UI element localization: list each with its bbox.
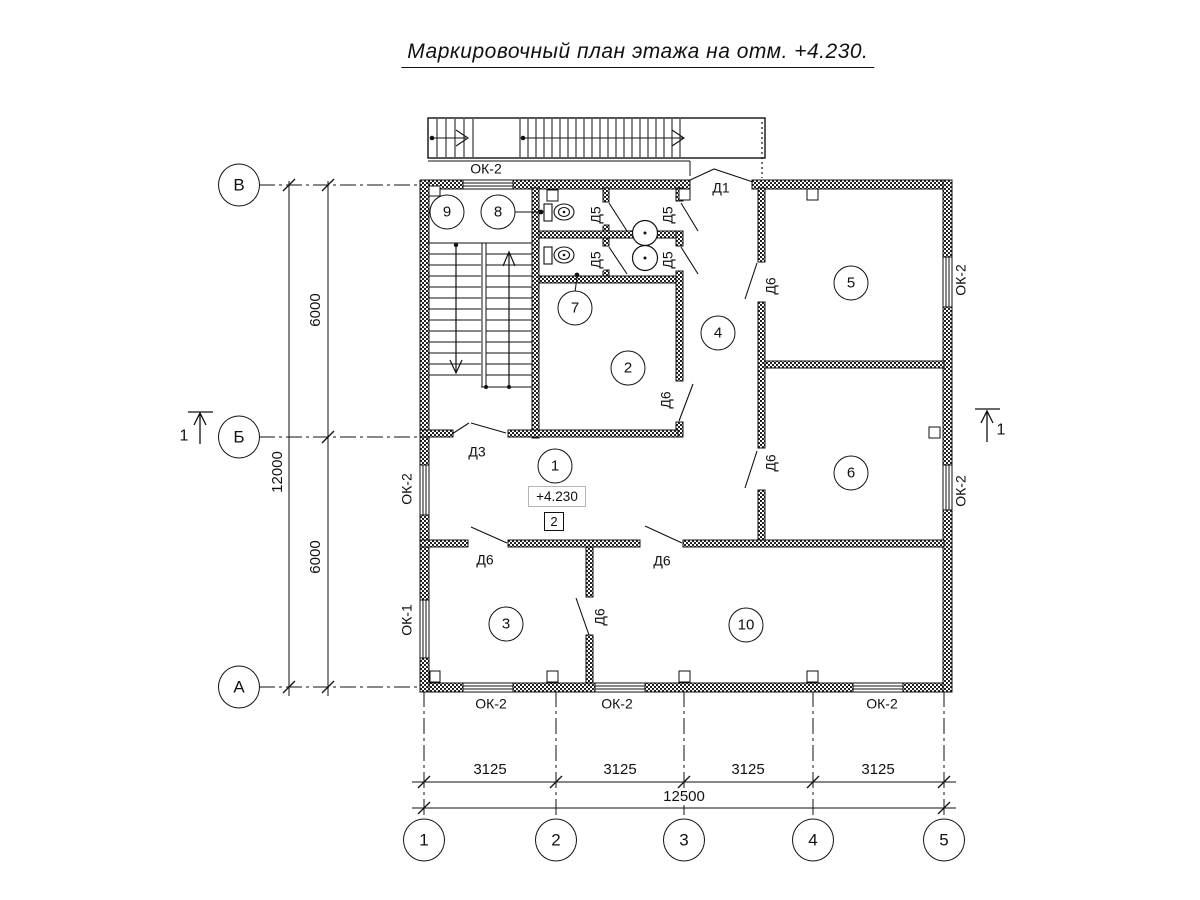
window-label: ОК-2 [400,471,415,507]
toilet-icon [544,247,574,264]
door-label: Д5 [661,204,676,225]
axis-col-circle: 4 [792,819,834,862]
dimension-label: 12000 [270,449,286,495]
elevation-mark: +4.230 [528,486,586,507]
door-label: Д5 [589,249,604,270]
floor-plan-page: Маркировочный план этажа на отм. +4.230.… [0,0,1200,900]
dimension-label: 3125 [859,762,896,778]
axis-row-circle: В [218,164,260,207]
dimension-label: 6000 [308,291,324,328]
axis-row-circle: Б [218,416,260,459]
sink-icon [633,221,658,271]
window-label: ОК-2 [864,697,900,712]
axis-row-circle: А [218,666,260,709]
window-left-1 [420,465,429,515]
door-label: Д6 [659,389,674,410]
dimension-label: 6000 [308,538,324,575]
room-number-circle: 2 [611,351,646,386]
door-label: Д1 [710,181,731,196]
door-label: Д6 [474,553,495,568]
room-number-circle: 6 [834,456,869,491]
window-right-1 [943,257,952,307]
dimension-label: 3125 [471,762,508,778]
room-number-circle: 1 [538,449,573,484]
window-label: ОК-2 [473,697,509,712]
floor-plan-drawing [0,0,1200,900]
section-mark-label: 1 [995,423,1008,440]
axis-col-circle: 2 [535,819,577,862]
window-bottom-3 [853,683,903,692]
window-label: ОК-2 [954,262,969,298]
drawing-title: Маркировочный план этажа на отм. +4.230. [401,40,874,68]
door-label: Д5 [589,204,604,225]
door-label: Д6 [764,452,779,473]
window-right-2 [943,465,952,510]
zone-number-box: 2 [544,512,564,531]
window-left-2 [420,600,429,658]
room-number-circle: 4 [701,316,736,351]
room-number-circle: 8 [481,195,516,230]
dimension-label: 3125 [601,762,638,778]
room-number-circle: 7 [558,291,593,326]
door-label: Д5 [661,249,676,270]
axis-col-circle: 5 [923,819,965,862]
door-label: Д3 [466,445,487,460]
door-label: Д6 [593,606,608,627]
room-number-circle: 9 [430,195,465,230]
room-number-circle: 10 [729,608,764,643]
section-mark-arrows [188,409,1000,444]
window-bottom-1 [463,683,513,692]
window-label: ОК-2 [468,162,504,177]
room-number-circle: 5 [834,266,869,301]
window-label: ОК-2 [599,697,635,712]
section-mark-label: 1 [178,429,191,446]
window-top [463,180,513,189]
window-bottom-2 [595,683,645,692]
door-label: Д6 [764,275,779,296]
dimension-label: 3125 [729,762,766,778]
dimension-label: 12500 [661,789,707,805]
toilet-icon [544,204,574,221]
window-label: ОК-1 [400,602,415,638]
axis-col-circle: 1 [403,819,445,862]
interior-stair [428,243,532,389]
door-label: Д6 [651,554,672,569]
room-number-circle: 3 [489,607,524,642]
window-label: ОК-2 [954,473,969,509]
axis-col-circle: 3 [663,819,705,862]
